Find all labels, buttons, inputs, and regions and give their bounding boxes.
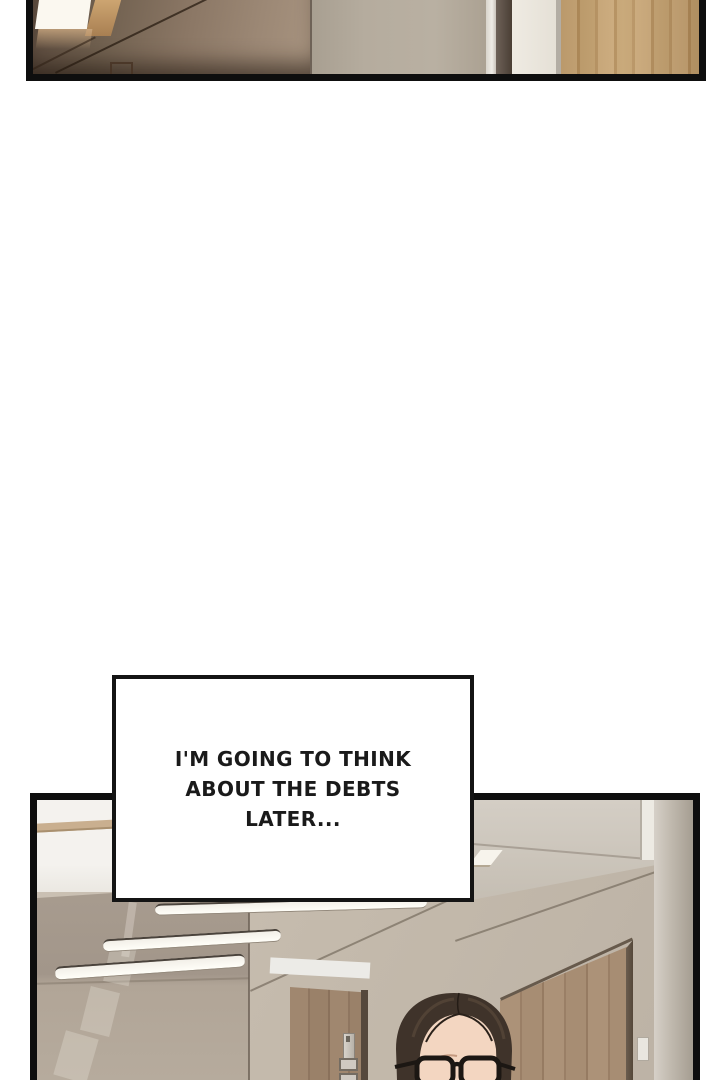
light-switch bbox=[339, 1058, 358, 1071]
speech-line-2: ABOUT THE DEBTS bbox=[185, 776, 400, 802]
wood-door-left-edge bbox=[361, 990, 368, 1080]
white-door-frame bbox=[512, 0, 556, 74]
speech-bubble: I'M GOING TO THINK ABOUT THE DEBTS LATER… bbox=[112, 675, 474, 902]
light-switch bbox=[339, 1073, 358, 1080]
top-ceiling-light bbox=[35, 0, 91, 29]
right-wall bbox=[654, 800, 693, 1080]
wood-door-right-edge bbox=[626, 940, 633, 1080]
beige-wall bbox=[310, 0, 488, 74]
door-frame-detail bbox=[637, 1037, 649, 1061]
ceiling-light-glow bbox=[36, 29, 93, 49]
picture-frame-top bbox=[110, 62, 133, 76]
panel-top bbox=[26, 0, 706, 81]
speech-line-3: LATER... bbox=[245, 806, 341, 832]
glass-reflection bbox=[53, 1030, 98, 1080]
glasses-bridge bbox=[453, 1064, 461, 1066]
man-with-glasses bbox=[393, 987, 517, 1080]
speech-line-1: I'M GOING TO THINK bbox=[175, 746, 411, 772]
wood-door-shading bbox=[561, 0, 699, 74]
glass-reflection bbox=[80, 986, 120, 1037]
glass-edge-highlight bbox=[486, 0, 496, 74]
card-reader-slot bbox=[346, 1036, 350, 1042]
webtoon-page: I'M GOING TO THINK ABOUT THE DEBTS LATER… bbox=[0, 0, 720, 1080]
switch-panel bbox=[339, 1058, 359, 1080]
glass-partition-edge bbox=[248, 884, 250, 1080]
dark-door-jamb bbox=[496, 0, 512, 74]
